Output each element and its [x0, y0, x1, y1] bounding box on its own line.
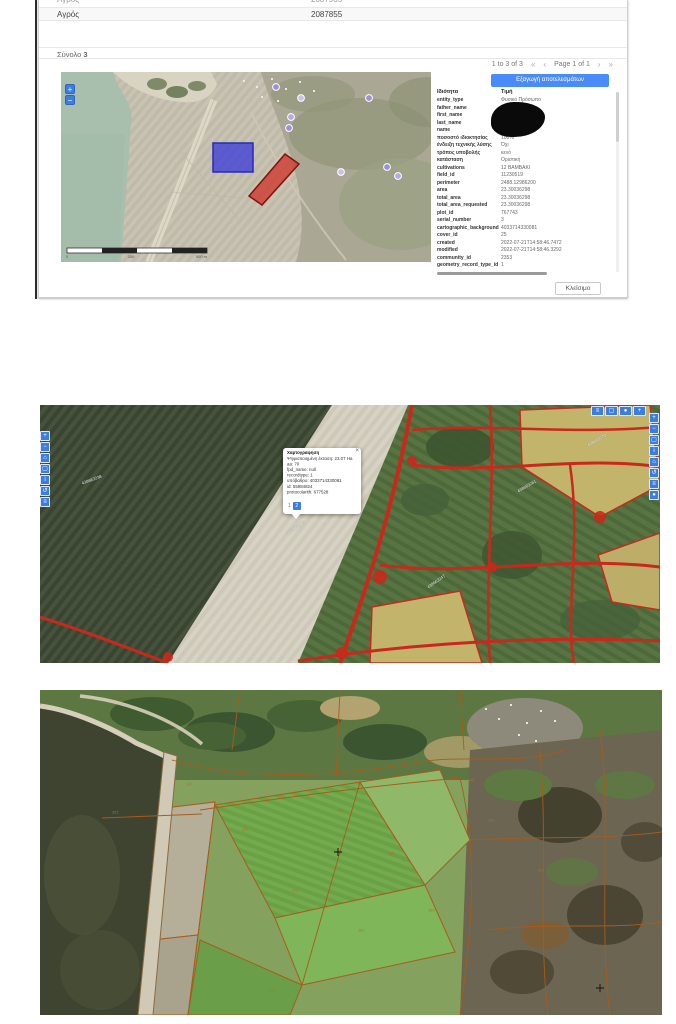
layers-button[interactable]: ≡: [649, 479, 659, 489]
attr-value: Όχι: [501, 142, 509, 148]
cadastral-label: 281: [358, 929, 365, 933]
attr-col-value: Τιμή: [501, 89, 513, 95]
map2-left-toolbar: + − ⌂ ▢ i ↺ ≡: [40, 431, 50, 507]
popup-body: Χαρτογράφηση Ψηφιοποιημένη έκταση: 23.07…: [287, 451, 365, 496]
zoom-in-button[interactable]: +: [40, 431, 50, 441]
export-results-button[interactable]: Εξαγωγή αποτελεσμάτων: [491, 74, 609, 87]
attr-value: 767743: [501, 210, 518, 216]
attr-value: 2022-07-21T14:58:46.3292: [501, 247, 562, 253]
attr-key: modified: [437, 247, 458, 253]
zoom-in-button[interactable]: +: [649, 413, 659, 423]
attr-key: ένδειξη τεχνικής λύσης: [437, 142, 492, 148]
refresh-button[interactable]: ↺: [649, 468, 659, 478]
map2-top-toolbar: ≡ ▢ ● +: [591, 406, 646, 416]
map1-imagery: 0 250 500 m: [61, 72, 431, 262]
redaction-overlay: [491, 102, 545, 137]
vertical-scrollbar-track: [616, 92, 619, 272]
grid-clipped-cell: 2087935: [311, 0, 342, 4]
attr-key: plot_id: [437, 210, 453, 216]
scale-bar: [67, 248, 207, 253]
cadastral-label: 301: [538, 869, 545, 873]
attr-key: total_area_requested: [437, 202, 487, 208]
attr-value: 23.30036298: [501, 187, 530, 193]
attr-key: entity_type: [437, 97, 463, 103]
attr-key: cultivations: [437, 165, 465, 171]
info-button[interactable]: i: [649, 446, 659, 456]
grid-cell: Αγρός: [57, 10, 79, 19]
attr-key: κατάσταση: [437, 157, 463, 163]
attr-key: father_name: [437, 105, 467, 111]
attr-key: serial_number: [437, 217, 471, 223]
popup-line: protocolarith: 677528: [287, 490, 365, 496]
attr-key: created: [437, 240, 455, 246]
attr-value: 1: [501, 262, 504, 268]
last-page-icon[interactable]: »: [609, 60, 613, 69]
add-button[interactable]: +: [633, 406, 646, 416]
attr-key: cartographic_background: [437, 225, 499, 231]
map-marker[interactable]: [366, 95, 373, 102]
attr-key: community_id: [437, 255, 471, 261]
attr-value: 4033714330081: [501, 225, 537, 231]
refresh-button[interactable]: ↺: [40, 486, 50, 496]
attr-key: ποσοστό ιδιοκτησίας: [437, 135, 488, 141]
attr-value: 2353: [501, 255, 512, 261]
map-marker[interactable]: [286, 125, 293, 132]
grid-cell: 2087855: [311, 10, 342, 19]
cadastral-label: 292: [488, 819, 495, 823]
vertical-scrollbar-thumb[interactable]: [616, 92, 619, 142]
attr-value: 3: [501, 217, 504, 223]
popup-page-2-button[interactable]: 2: [293, 502, 301, 510]
attr-key: cover_id: [437, 232, 458, 238]
attr-key: τρόπος υποβολής: [437, 150, 480, 156]
attr-value: 11230519: [501, 172, 523, 178]
basemap-button[interactable]: ▢: [605, 406, 618, 416]
attr-key: geometry_record_type_id: [437, 262, 498, 268]
prev-page-icon[interactable]: ‹: [543, 60, 546, 69]
map3-imagery: [40, 690, 662, 1015]
popup-page-1[interactable]: 1: [288, 503, 291, 509]
extent-button[interactable]: ▢: [649, 435, 659, 445]
map3-canvas[interactable]: 247 251 263 268 270 281 285 292 301 308 …: [40, 690, 662, 1015]
attr-key: last_name: [437, 120, 461, 126]
scale-tick: 250: [128, 254, 135, 259]
attr-value: 25: [501, 232, 507, 238]
info-button[interactable]: i: [40, 475, 50, 485]
cadastral-label: 314: [268, 989, 275, 993]
cadastral-label: 270: [292, 889, 299, 893]
locate-button[interactable]: ●: [649, 490, 659, 500]
first-page-icon[interactable]: «: [531, 60, 535, 69]
map2-canvas[interactable]: + − ⌂ ▢ i ↺ ≡ + − ▢ i ⌂ ↺ ≡ ● ≡ ▢ ● + 43…: [40, 405, 660, 663]
attributes-panel: Εξαγωγή αποτελεσμάτων Ιδιότητα Τιμή enti…: [433, 72, 619, 278]
attr-value: 23.30036298: [501, 195, 530, 201]
map-marker[interactable]: [338, 169, 345, 176]
map-marker[interactable]: [384, 164, 391, 171]
grid-pagination: 1 to 3 of 3 « ‹ Page 1 of 1 › »: [492, 59, 613, 69]
cadastral-label: 308: [468, 779, 475, 783]
attr-key: total_area: [437, 195, 461, 201]
close-button[interactable]: Κλείσιμο: [555, 282, 601, 295]
attr-key: area: [437, 187, 447, 193]
window-edge-line: [35, 0, 37, 299]
cadastral-label: 285: [428, 909, 435, 913]
pagination-page-label: Page 1 of 1: [554, 61, 590, 68]
gis-window: Αγρός 2087935 Αγρός 2087855 Σύνολο 3 1 t…: [38, 0, 628, 298]
attr-value: 2022-07-21T14:58:46.7472: [501, 240, 562, 246]
attr-key: first_name: [437, 112, 462, 118]
map-marker[interactable]: [273, 84, 280, 91]
extent-button[interactable]: ▢: [40, 464, 50, 474]
attr-value: 12 ΒΑΜΒΑΚΙ: [501, 165, 530, 171]
layers-button[interactable]: ≡: [40, 497, 50, 507]
menu-button[interactable]: ≡: [591, 406, 604, 416]
document-page: Αγρός 2087935 Αγρός 2087855 Σύνολο 3 1 t…: [0, 0, 676, 1024]
next-page-icon[interactable]: ›: [598, 60, 601, 69]
selected-parcel-blue[interactable]: [213, 143, 253, 172]
grid-clipped-cell: Αγρός: [57, 0, 79, 4]
home-button[interactable]: ⌂: [649, 457, 659, 467]
map2-right-toolbar: + − ▢ i ⌂ ↺ ≡ ●: [649, 413, 659, 500]
attr-col-key: Ιδιότητα: [437, 89, 458, 95]
home-button[interactable]: ⌂: [40, 453, 50, 463]
zoom-out-button[interactable]: −: [40, 442, 50, 452]
cadastral-label: 263: [338, 809, 345, 813]
map1-canvas[interactable]: 0 250 500 m + −: [61, 72, 431, 262]
pagination-range-label: 1 to 3 of 3: [492, 61, 523, 68]
attr-value: Οριστική: [501, 157, 520, 163]
map2-imagery: [40, 405, 660, 663]
zoom-in-button[interactable]: +: [65, 84, 75, 94]
cadastral-label: 322: [112, 811, 119, 815]
attr-key: perimeter: [437, 180, 460, 186]
map-marker[interactable]: [288, 114, 295, 121]
attr-value: 23.30036298: [501, 202, 530, 208]
feature-popup: × Χαρτογράφηση Ψηφιοποιημένη έκταση: 23.…: [283, 448, 361, 514]
map-marker[interactable]: [395, 173, 402, 180]
cadastral-label: 247: [186, 783, 193, 787]
horizontal-scrollbar[interactable]: [437, 272, 547, 275]
attr-value: 2488.12986200: [501, 180, 536, 186]
zoom-out-button[interactable]: −: [65, 95, 75, 105]
popup-pager: 1 2: [288, 502, 301, 510]
zoom-out-button[interactable]: −: [649, 424, 659, 434]
map-marker[interactable]: [298, 95, 305, 102]
scale-tick: 500 m: [196, 254, 208, 259]
legend-button[interactable]: ●: [619, 406, 632, 416]
attr-key: field_id: [437, 172, 455, 178]
attr-value: κενό: [501, 150, 511, 156]
grid-row[interactable]: Αγρός 2087855: [39, 8, 627, 20]
attr-key: name: [437, 127, 450, 133]
